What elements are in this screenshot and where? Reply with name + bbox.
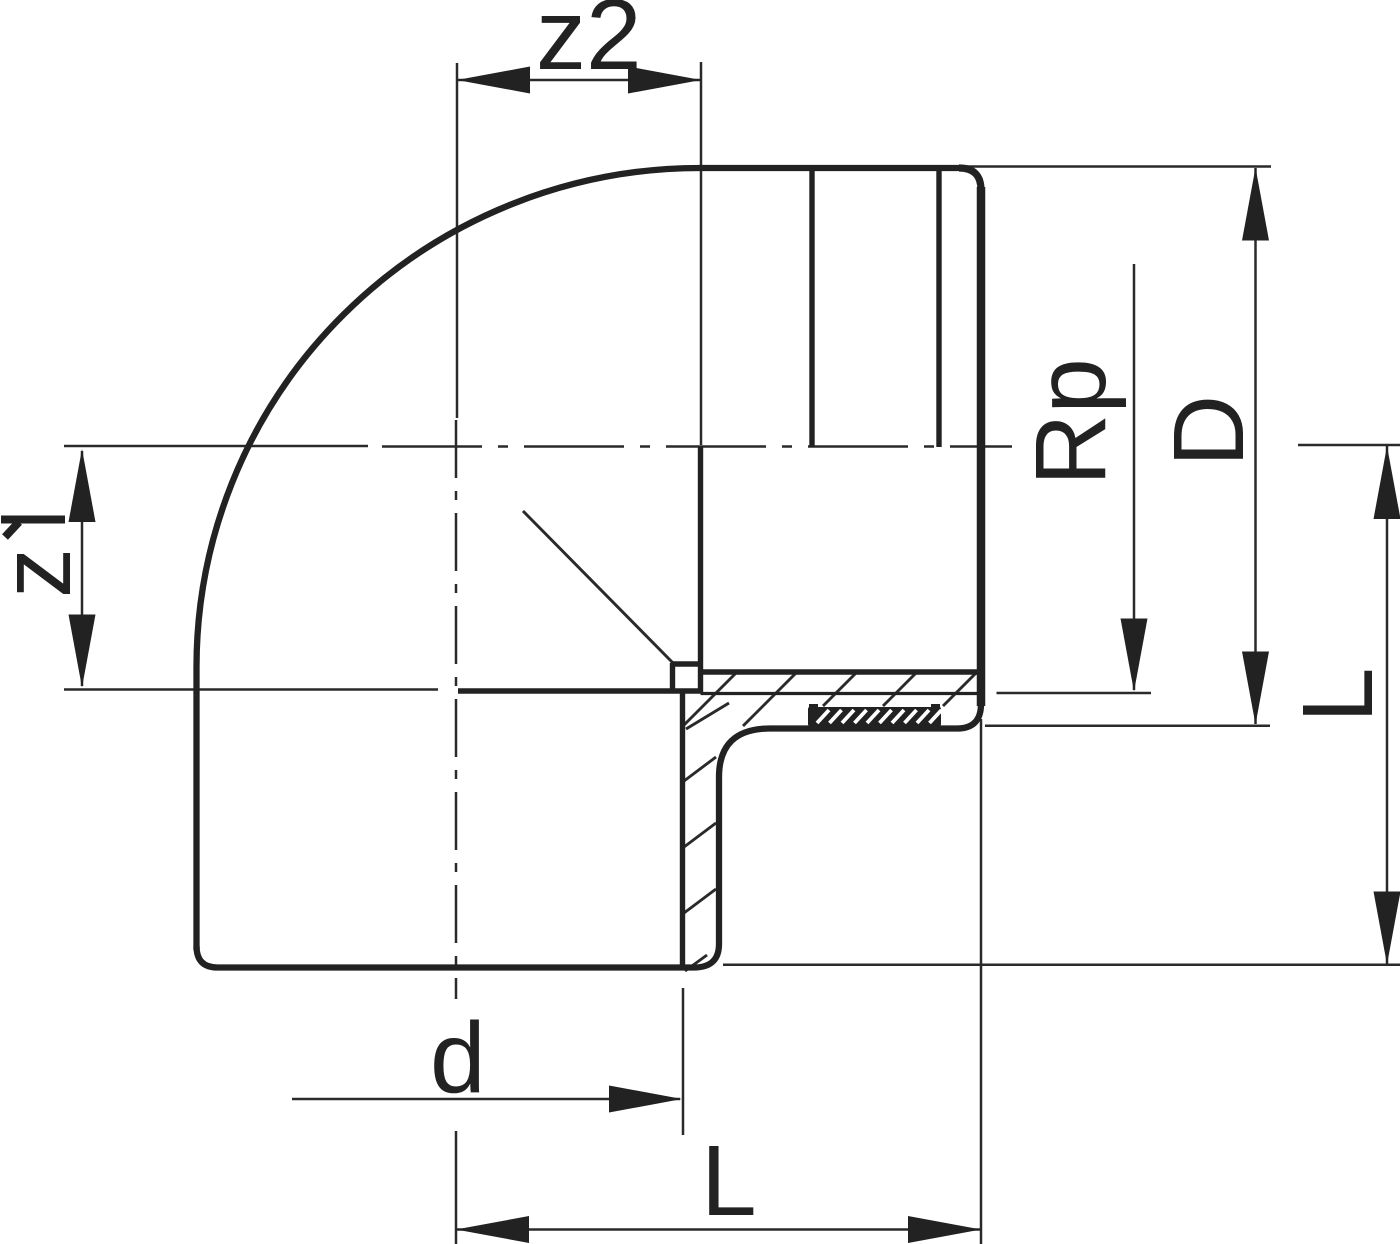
svg-text:Rp: Rp <box>1015 358 1127 486</box>
svg-text:d: d <box>430 1002 486 1114</box>
svg-text:L: L <box>701 1125 757 1237</box>
svg-text:L: L <box>1282 667 1394 723</box>
svg-text:z2: z2 <box>536 0 642 91</box>
svg-text:D: D <box>1153 395 1265 467</box>
svg-text:z: z <box>0 548 92 598</box>
